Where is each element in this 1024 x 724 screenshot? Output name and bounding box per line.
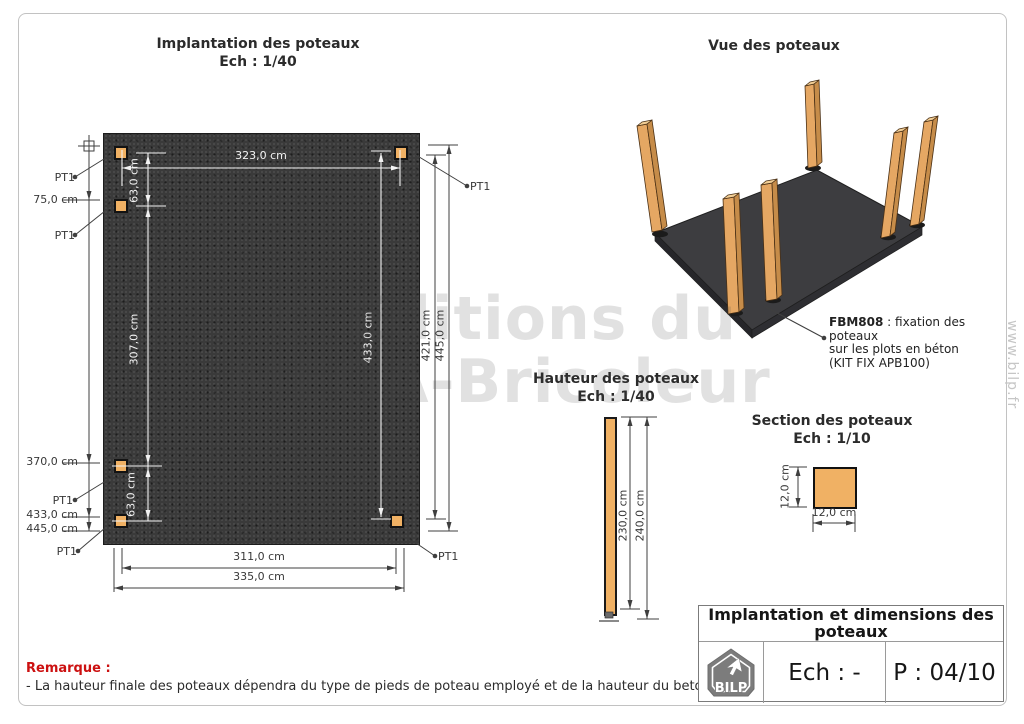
dim-12-width: 12,0 cm bbox=[804, 506, 864, 519]
dim-63-bottom: 63,0 cm bbox=[125, 469, 138, 521]
pt1-label-2: PT1 bbox=[49, 229, 75, 242]
fbm-line3: (KIT FIX APB100) bbox=[829, 357, 1014, 371]
fbm-line1: FBM808 : fixation des poteaux bbox=[829, 316, 1014, 343]
title-block-page: P : 04/10 bbox=[886, 642, 1003, 703]
remark-label: Remarque : bbox=[26, 661, 769, 676]
dim-421: 421,0 cm bbox=[420, 307, 433, 365]
dim-240: 240,0 cm bbox=[634, 487, 647, 545]
fbm-code: FBM808 bbox=[829, 315, 883, 329]
logo-cell: BILP bbox=[699, 642, 764, 703]
remark-text: - La hauteur finale des poteaux dépendra… bbox=[26, 679, 769, 694]
dim-445-left: 445,0 cm bbox=[14, 522, 78, 535]
fbm-line2: sur les plots en béton bbox=[829, 343, 1014, 357]
dim-230: 230,0 cm bbox=[617, 487, 630, 545]
post-bottom-right bbox=[390, 514, 404, 528]
section-scale: Ech : 1/10 bbox=[732, 431, 932, 447]
plan-title: Implantation des poteaux bbox=[108, 36, 408, 52]
pt1-label-3: PT1 bbox=[47, 494, 73, 507]
title-block-title: Implantation et dimensions des poteaux bbox=[699, 606, 1003, 642]
plan-scale: Ech : 1/40 bbox=[108, 54, 408, 70]
post-section-square bbox=[813, 467, 857, 509]
pt1-label-1: PT1 bbox=[49, 171, 75, 184]
post-top-right bbox=[394, 146, 408, 160]
dim-323: 323,0 cm bbox=[211, 149, 311, 162]
dim-63-top: 63,0 cm bbox=[128, 155, 141, 207]
remark-block: Remarque : - La hauteur finale des potea… bbox=[26, 661, 769, 694]
bilp-logo-text: BILP bbox=[715, 681, 748, 696]
hauteur-scale: Ech : 1/40 bbox=[516, 389, 716, 405]
drawing-sheet: Implantation des poteaux Ech : 1/40 bbox=[0, 0, 1024, 724]
dim-12-height: 12,0 cm bbox=[779, 463, 792, 511]
fbm-annotation: FBM808 : fixation des poteaux sur les pl… bbox=[829, 316, 1014, 370]
dim-433-left: 433,0 cm bbox=[14, 508, 78, 521]
post-top-left bbox=[114, 146, 128, 160]
pt1-label-4: PT1 bbox=[51, 545, 77, 558]
dim-335: 335,0 cm bbox=[199, 570, 319, 583]
post-left-second bbox=[114, 199, 128, 213]
view3d-title: Vue des poteaux bbox=[674, 38, 874, 54]
dim-75: 75,0 cm bbox=[20, 193, 78, 206]
pt1-label-5: PT1 bbox=[470, 180, 490, 193]
bilp-logo-icon: BILP bbox=[705, 647, 757, 699]
dim-307: 307,0 cm bbox=[128, 311, 141, 369]
dim-370: 370,0 cm bbox=[14, 455, 78, 468]
pt1-label-6: PT1 bbox=[438, 550, 458, 563]
post-elevation bbox=[604, 417, 617, 616]
dim-311: 311,0 cm bbox=[199, 550, 319, 563]
dim-433-inner: 433,0 cm bbox=[362, 309, 375, 367]
dim-445-right: 445,0 cm bbox=[434, 307, 447, 365]
title-block-scale: Ech : - bbox=[764, 642, 886, 703]
hauteur-title: Hauteur des poteaux bbox=[516, 371, 716, 387]
section-title: Section des poteaux bbox=[732, 413, 932, 429]
title-block: Implantation et dimensions des poteaux B… bbox=[698, 605, 1004, 702]
